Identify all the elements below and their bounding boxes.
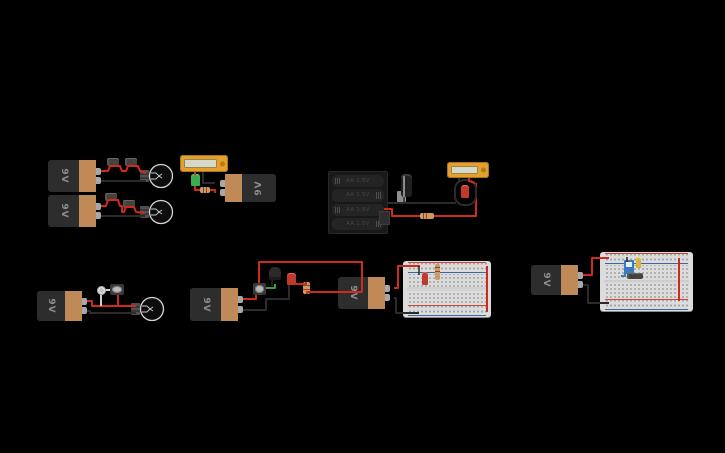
battery-label: 9V	[254, 180, 264, 195]
battery-body: 9V	[48, 195, 79, 227]
battery-band	[368, 277, 385, 309]
multimeter-screen	[451, 166, 478, 174]
c1-lightbulb[interactable]	[139, 160, 177, 194]
aa-slot-label: AA 1.5V	[346, 221, 369, 227]
circuit-canvas: 9V 9V 9V	[0, 0, 725, 453]
rail-red-line	[408, 305, 486, 306]
c4-aa-battery-holder[interactable]: AA 1.5V AA 1.5V AA 1.5V AA 1.5V	[328, 171, 388, 234]
c4-red-led[interactable]	[461, 185, 469, 198]
battery-label: 9V	[201, 297, 211, 312]
c8-resistor[interactable]	[627, 273, 643, 279]
c6-transistor[interactable]	[269, 267, 281, 280]
c6-9v-battery[interactable]: 9V	[190, 288, 243, 321]
c4-multimeter[interactable]	[447, 162, 489, 178]
battery-terminals	[82, 291, 87, 321]
battery-label: 9V	[541, 272, 551, 287]
c1-9v-battery[interactable]: 9V	[48, 160, 101, 192]
rail-red-line	[408, 262, 486, 263]
c5-black-wire[interactable]	[87, 311, 136, 313]
battery-terminals	[578, 265, 583, 295]
c3-red-wire-2[interactable]	[210, 190, 215, 193]
c4-capacitor[interactable]	[401, 174, 412, 197]
c5-lightbulb[interactable]	[130, 293, 168, 327]
battery-body: 9V	[37, 291, 65, 321]
battery-body: 9V	[242, 174, 276, 202]
aa-slot-label: AA 1.5V	[346, 207, 369, 213]
c3-resistor[interactable]	[200, 187, 210, 193]
socket-ridge	[140, 177, 149, 179]
power-rail-bottom	[604, 300, 689, 309]
c1-resistor-1[interactable]	[107, 158, 119, 166]
aa-slot: AA 1.5V	[332, 189, 384, 201]
battery-body: 9V	[531, 265, 561, 295]
c1-resistor-2[interactable]	[125, 158, 137, 166]
aa-slot-label: AA 1.5V	[346, 178, 369, 184]
c3-green-led[interactable]	[191, 174, 200, 186]
bulb-glass	[150, 165, 173, 188]
bulb-glass	[141, 298, 164, 321]
aa-slot: AA 1.5V	[332, 175, 384, 187]
battery-band	[65, 291, 82, 321]
c3-9v-battery[interactable]: 9V	[220, 174, 276, 202]
c3-multimeter[interactable]	[180, 155, 228, 172]
c7-resistor[interactable]	[435, 264, 440, 280]
aa-slot: AA 1.5V	[332, 204, 384, 216]
socket-ridge	[140, 209, 149, 211]
battery-band	[79, 160, 96, 192]
c8-yellow-led[interactable]	[636, 257, 641, 268]
battery-terminals	[385, 277, 390, 309]
rail-red-line	[605, 299, 688, 300]
aa-slot-label: AA 1.5V	[346, 192, 369, 198]
rail-blue-line	[408, 315, 486, 316]
terminal-strip	[604, 265, 689, 298]
pack-terminal-block	[379, 211, 390, 225]
c6-red-led[interactable]	[287, 273, 296, 285]
rail-red-line	[605, 253, 688, 254]
battery-terminals	[238, 288, 243, 321]
c6-green-wire[interactable]	[266, 284, 275, 288]
battery-body: 9V	[190, 288, 221, 321]
socket-ridge	[131, 310, 140, 312]
battery-body: 9V	[48, 160, 79, 192]
rail-blue-line	[605, 309, 688, 310]
c6-pushbutton[interactable]	[253, 283, 266, 295]
c4-resistor[interactable]	[420, 213, 434, 219]
c5-switch[interactable]	[110, 284, 124, 295]
c5-red-wire[interactable]	[87, 301, 136, 306]
c7-breadboard[interactable]	[403, 261, 491, 317]
aa-slot: AA 1.5V	[332, 218, 384, 230]
battery-terminals	[96, 160, 101, 192]
c5-pushbutton[interactable]	[97, 286, 106, 295]
battery-label: 9V	[59, 203, 69, 218]
terminal-strip	[407, 274, 487, 304]
c5-9v-battery[interactable]: 9V	[37, 291, 87, 321]
multimeter-screen	[184, 159, 217, 168]
c2-9v-battery[interactable]: 9V	[48, 195, 101, 227]
multimeter-knob[interactable]	[481, 168, 486, 173]
multimeter-knob[interactable]	[220, 161, 225, 166]
c3-black-probe[interactable]	[203, 172, 215, 183]
battery-band	[221, 288, 238, 321]
battery-terminals	[96, 195, 101, 227]
power-rail-top	[604, 254, 689, 263]
c6-red-wire[interactable]	[243, 295, 256, 299]
spring-icon	[376, 192, 381, 198]
c7-red-led[interactable]	[422, 272, 428, 285]
battery-label: 9V	[59, 168, 69, 183]
battery-label: 9V	[46, 298, 56, 313]
spring-icon	[335, 178, 340, 184]
battery-band	[225, 174, 242, 202]
bulb-glass	[150, 201, 173, 224]
rail-blue-line	[605, 263, 688, 264]
c8-9v-battery[interactable]: 9V	[531, 265, 583, 295]
battery-band	[561, 265, 578, 295]
spring-icon	[335, 207, 340, 213]
battery-band	[79, 195, 96, 227]
